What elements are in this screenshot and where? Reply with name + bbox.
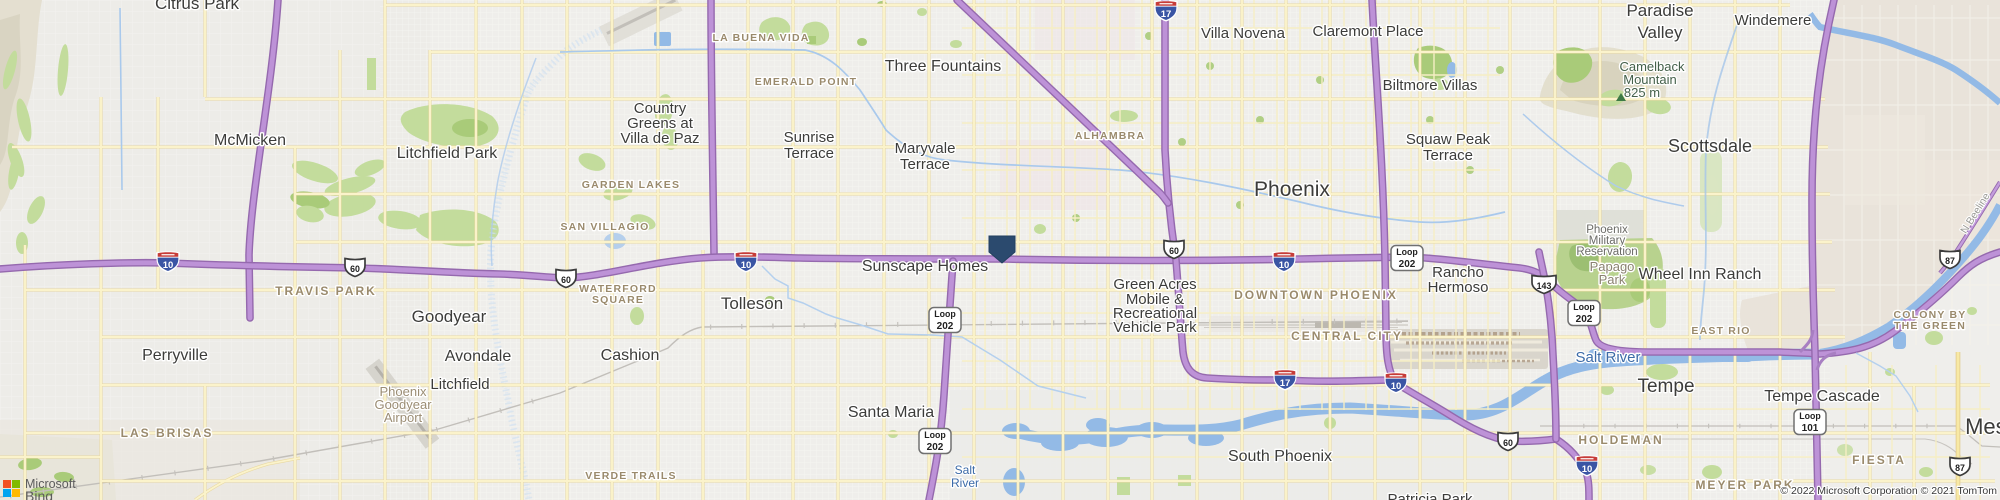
- svg-text:Loop: Loop: [924, 430, 946, 440]
- svg-text:GARDEN LAKES: GARDEN LAKES: [582, 179, 680, 191]
- svg-text:17: 17: [1161, 9, 1172, 20]
- svg-text:Salt: Salt: [955, 463, 976, 477]
- svg-text:10: 10: [1582, 464, 1593, 475]
- svg-text:60: 60: [350, 264, 360, 274]
- svg-text:Tolleson: Tolleson: [721, 294, 783, 313]
- svg-text:Terrace: Terrace: [784, 145, 834, 162]
- svg-text:Perryville: Perryville: [142, 347, 208, 364]
- svg-text:Hermoso: Hermoso: [1428, 279, 1489, 296]
- svg-text:Terrace: Terrace: [1423, 147, 1473, 164]
- svg-text:Salt River: Salt River: [1575, 349, 1640, 366]
- svg-text:South Phoenix: South Phoenix: [1228, 448, 1332, 465]
- svg-text:EAST RIO: EAST RIO: [1691, 325, 1750, 337]
- svg-text:825 m: 825 m: [1624, 85, 1660, 100]
- svg-text:DOWNTOWN PHOENIX: DOWNTOWN PHOENIX: [1234, 288, 1398, 302]
- svg-text:© 2022 Microsoft Corporation ©: © 2022 Microsoft Corporation © 2021 TomT…: [1780, 485, 1997, 497]
- svg-text:THE GREEN: THE GREEN: [1894, 320, 1966, 332]
- svg-text:Wheel Inn Ranch: Wheel Inn Ranch: [1639, 266, 1762, 283]
- svg-text:60: 60: [561, 275, 571, 285]
- svg-text:202: 202: [927, 442, 944, 453]
- svg-text:River: River: [951, 476, 979, 490]
- svg-text:Valley: Valley: [1637, 23, 1683, 42]
- svg-text:Maryvale: Maryvale: [895, 140, 956, 157]
- svg-text:Sunscape Homes: Sunscape Homes: [862, 258, 988, 275]
- svg-text:Paradise: Paradise: [1626, 1, 1693, 20]
- svg-text:Bing: Bing: [25, 488, 53, 500]
- svg-text:FIESTA: FIESTA: [1852, 453, 1906, 467]
- svg-text:Squaw Peak: Squaw Peak: [1406, 131, 1491, 148]
- svg-text:Biltmore Villas: Biltmore Villas: [1383, 77, 1478, 94]
- svg-text:Vehicle Park: Vehicle Park: [1113, 319, 1197, 336]
- svg-text:HOLDEMAN: HOLDEMAN: [1578, 433, 1663, 447]
- svg-text:SQUARE: SQUARE: [592, 294, 644, 306]
- svg-text:TRAVIS PARK: TRAVIS PARK: [275, 284, 377, 298]
- svg-text:17: 17: [1280, 378, 1291, 389]
- svg-text:Sunrise: Sunrise: [784, 129, 835, 146]
- svg-text:Terrace: Terrace: [900, 156, 950, 173]
- svg-text:CENTRAL CITY: CENTRAL CITY: [1291, 329, 1403, 343]
- svg-text:Tempe Cascade: Tempe Cascade: [1764, 388, 1880, 405]
- svg-text:Patricia Park: Patricia Park: [1387, 491, 1473, 500]
- svg-text:ALHAMBRA: ALHAMBRA: [1075, 130, 1145, 142]
- svg-text:10: 10: [741, 260, 752, 271]
- svg-text:Tempe: Tempe: [1637, 376, 1694, 397]
- svg-text:McMicken: McMicken: [214, 132, 286, 149]
- svg-text:SAN VILLAGIO: SAN VILLAGIO: [560, 221, 649, 233]
- svg-text:EMERALD POINT: EMERALD POINT: [755, 76, 858, 88]
- svg-text:Loop: Loop: [1573, 302, 1595, 312]
- svg-text:Litchfield: Litchfield: [430, 376, 489, 393]
- svg-text:Villa de Paz: Villa de Paz: [621, 130, 700, 147]
- svg-text:Loop: Loop: [1799, 411, 1821, 421]
- svg-text:10: 10: [1391, 381, 1402, 392]
- svg-text:Windemere: Windemere: [1735, 12, 1812, 29]
- svg-text:202: 202: [1399, 259, 1416, 270]
- svg-text:Santa Maria: Santa Maria: [848, 404, 934, 421]
- svg-text:Claremont Place: Claremont Place: [1313, 23, 1424, 40]
- svg-text:Scottsdale: Scottsdale: [1668, 136, 1752, 156]
- svg-text:Loop: Loop: [1396, 247, 1418, 257]
- svg-text:LA BUENA VIDA: LA BUENA VIDA: [712, 32, 809, 44]
- svg-text:143: 143: [1537, 281, 1552, 291]
- svg-text:Citrus Park: Citrus Park: [155, 0, 240, 13]
- svg-text:Reservation: Reservation: [1576, 246, 1637, 258]
- svg-text:Villa Novena: Villa Novena: [1201, 25, 1286, 42]
- svg-text:Loop: Loop: [934, 309, 956, 319]
- svg-text:Avondale: Avondale: [445, 348, 512, 365]
- svg-text:60: 60: [1169, 246, 1179, 256]
- svg-text:Cashion: Cashion: [601, 347, 660, 364]
- svg-text:Litchfield Park: Litchfield Park: [397, 145, 498, 162]
- svg-text:101: 101: [1802, 423, 1819, 434]
- svg-text:202: 202: [1576, 314, 1593, 325]
- svg-text:LAS BRISAS: LAS BRISAS: [121, 426, 214, 440]
- svg-text:Three Fountains: Three Fountains: [885, 58, 1002, 75]
- svg-text:Phoenix: Phoenix: [1254, 178, 1330, 201]
- svg-text:87: 87: [1945, 256, 1955, 266]
- svg-text:Goodyear: Goodyear: [412, 307, 487, 326]
- svg-text:10: 10: [1279, 260, 1290, 271]
- svg-text:Mesa: Mesa: [1965, 414, 2000, 439]
- svg-text:VERDE TRAILS: VERDE TRAILS: [585, 470, 676, 482]
- svg-text:Airport: Airport: [384, 410, 423, 425]
- svg-text:Park: Park: [1599, 272, 1626, 287]
- svg-text:60: 60: [1503, 438, 1513, 448]
- svg-text:202: 202: [937, 321, 954, 332]
- svg-text:10: 10: [163, 260, 174, 271]
- svg-text:87: 87: [1955, 463, 1965, 473]
